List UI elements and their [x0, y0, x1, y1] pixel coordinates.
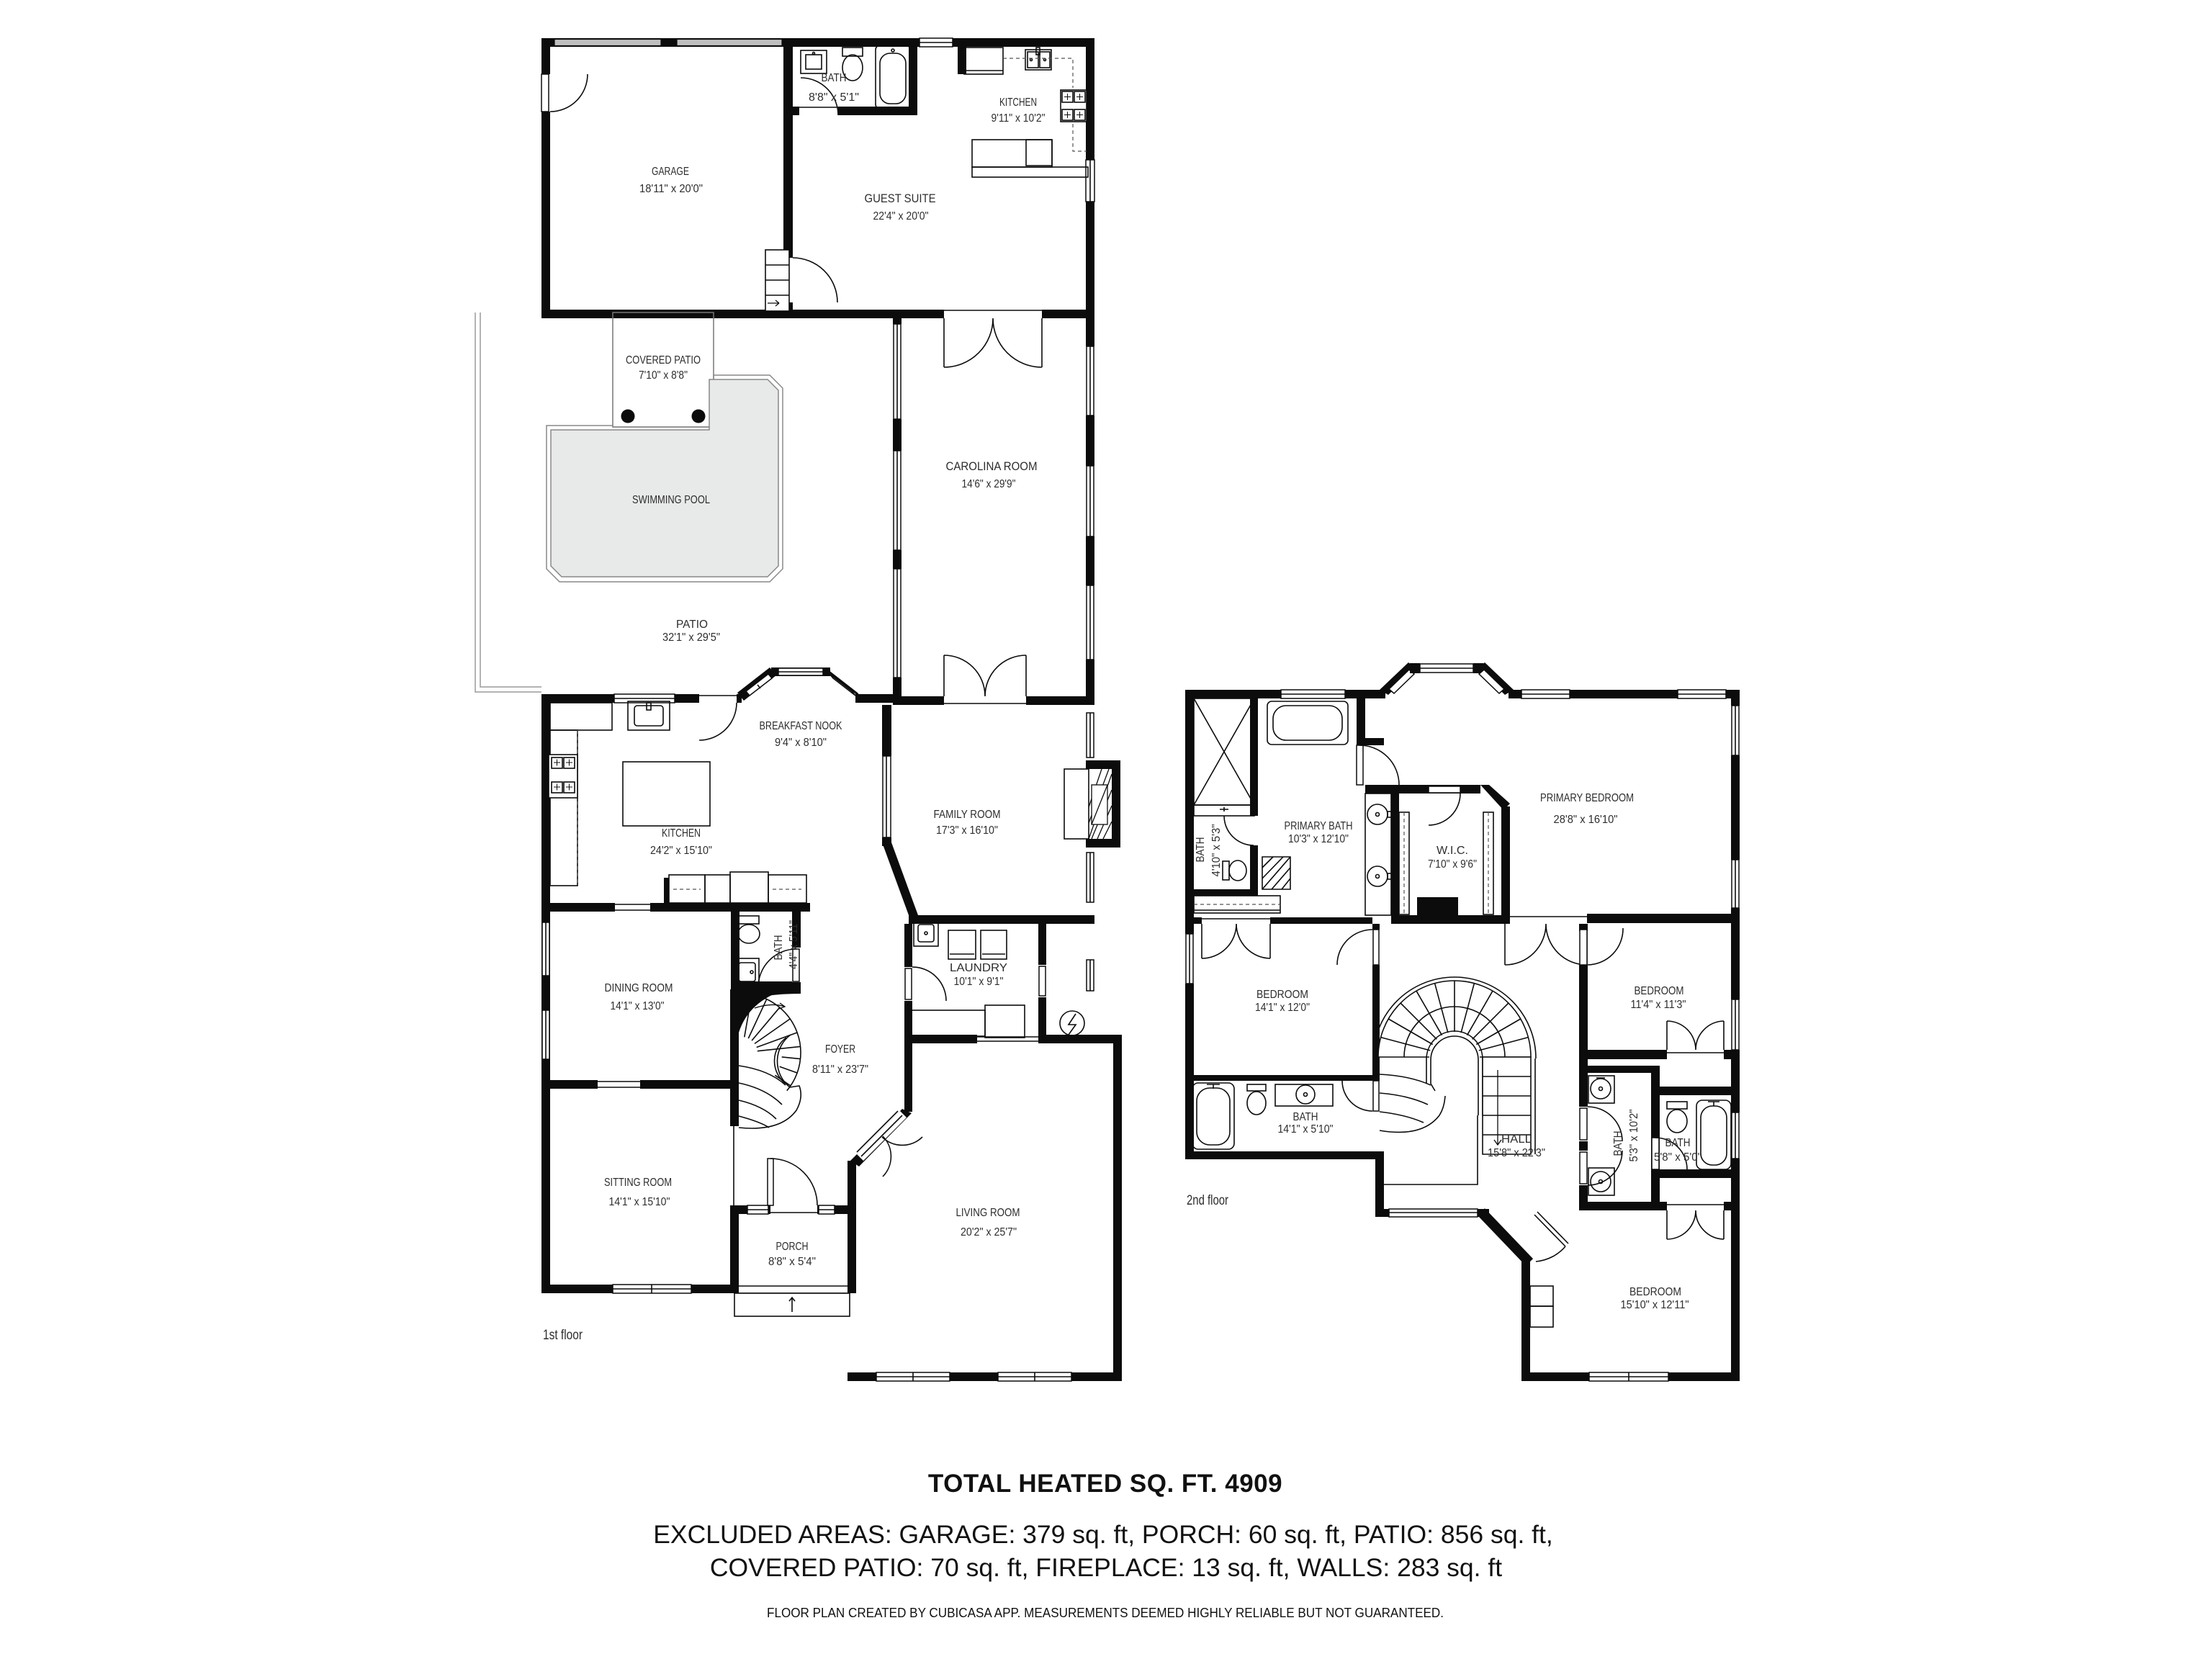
svg-text:BEDROOM: BEDROOM	[1629, 1286, 1681, 1298]
svg-text:BEDROOM: BEDROOM	[1256, 989, 1308, 1001]
svg-text:22'4" x 20'0": 22'4" x 20'0"	[873, 210, 929, 222]
svg-text:BATH: BATH	[1293, 1111, 1318, 1123]
svg-text:COVERED PATIO: 70 sq. ft, FIRE: COVERED PATIO: 70 sq. ft, FIREPLACE: 13 …	[710, 1553, 1502, 1582]
svg-text:BATH: BATH	[1665, 1137, 1691, 1149]
svg-text:7'10" x 8'8": 7'10" x 8'8"	[639, 369, 688, 382]
svg-text:W.I.C.: W.I.C.	[1437, 845, 1468, 857]
svg-text:GARAGE: GARAGE	[652, 166, 689, 178]
svg-text:LIVING ROOM: LIVING ROOM	[956, 1207, 1020, 1219]
svg-text:SWIMMING POOL: SWIMMING POOL	[632, 494, 710, 506]
svg-text:32'1" x 29'5": 32'1" x 29'5"	[662, 631, 720, 644]
svg-text:9'4" x 8'10": 9'4" x 8'10"	[775, 737, 827, 749]
svg-text:BATH: BATH	[773, 935, 785, 961]
svg-text:PRIMARY BEDROOM: PRIMARY BEDROOM	[1540, 792, 1634, 804]
svg-text:FOYER: FOYER	[825, 1043, 855, 1056]
svg-text:17'3" x 16'10": 17'3" x 16'10"	[936, 824, 998, 837]
svg-text:KITCHEN: KITCHEN	[662, 827, 701, 840]
svg-text:18'11" x 20'0": 18'11" x 20'0"	[639, 183, 703, 195]
svg-text:10'1" x 9'1": 10'1" x 9'1"	[954, 976, 1004, 988]
svg-text:BATH: BATH	[1195, 837, 1207, 863]
svg-text:24'2" x 15'10": 24'2" x 15'10"	[650, 845, 712, 857]
svg-text:4'10" x 5'3": 4'10" x 5'3"	[1210, 824, 1223, 877]
svg-text:8'8" x 5'4": 8'8" x 5'4"	[768, 1256, 816, 1268]
svg-text:9'11" x 10'2": 9'11" x 10'2"	[992, 112, 1046, 125]
svg-text:15'8" x 22'3": 15'8" x 22'3"	[1488, 1147, 1545, 1159]
svg-text:SITTING ROOM: SITTING ROOM	[604, 1177, 672, 1189]
svg-text:FAMILY ROOM: FAMILY ROOM	[934, 809, 1001, 821]
svg-text:KITCHEN: KITCHEN	[999, 96, 1037, 109]
svg-text:5'8" x 5'0": 5'8" x 5'0"	[1654, 1151, 1701, 1164]
svg-text:COVERED PATIO: COVERED PATIO	[626, 354, 701, 367]
svg-text:10'3" x 12'10": 10'3" x 12'10"	[1288, 833, 1349, 845]
svg-text:LAUNDRY: LAUNDRY	[950, 962, 1007, 974]
svg-text:28'8" x 16'10": 28'8" x 16'10"	[1554, 814, 1618, 826]
svg-text:BREAKFAST NOOK: BREAKFAST NOOK	[760, 720, 842, 732]
svg-text:CAROLINA ROOM: CAROLINA ROOM	[946, 459, 1038, 473]
svg-text:PORCH: PORCH	[776, 1241, 809, 1253]
svg-text:PRIMARY BATH: PRIMARY BATH	[1285, 820, 1353, 832]
svg-text:14'1" x 5'10": 14'1" x 5'10"	[1278, 1123, 1334, 1136]
svg-text:5'3" x 10'2": 5'3" x 10'2"	[1628, 1110, 1640, 1162]
svg-text:BEDROOM: BEDROOM	[1635, 985, 1684, 997]
svg-text:BATH: BATH	[1612, 1131, 1624, 1156]
svg-text:14'1" x 15'10": 14'1" x 15'10"	[609, 1196, 670, 1208]
svg-text:8'8" x 5'1": 8'8" x 5'1"	[809, 91, 859, 104]
svg-text:7'10" x 9'6": 7'10" x 9'6"	[1428, 858, 1477, 871]
svg-text:FLOOR PLAN CREATED BY CUBICASA: FLOOR PLAN CREATED BY CUBICASA APP. MEAS…	[767, 1606, 1444, 1620]
svg-text:20'2" x 25'7": 20'2" x 25'7"	[961, 1226, 1017, 1238]
svg-text:2nd floor: 2nd floor	[1187, 1193, 1229, 1208]
svg-text:1st floor: 1st floor	[543, 1328, 583, 1343]
svg-text:GUEST SUITE: GUEST SUITE	[865, 192, 936, 205]
svg-text:8'11" x 23'7": 8'11" x 23'7"	[812, 1064, 868, 1076]
svg-text:15'10" x 12'11": 15'10" x 12'11"	[1621, 1299, 1689, 1311]
svg-text:14'1" x 13'0": 14'1" x 13'0"	[611, 1000, 665, 1012]
svg-text:HALL: HALL	[1501, 1133, 1532, 1146]
svg-text:11'4" x 11'3": 11'4" x 11'3"	[1631, 999, 1686, 1011]
svg-text:EXCLUDED AREAS: GARAGE: 379 sq: EXCLUDED AREAS: GARAGE: 379 sq. ft, PORC…	[653, 1520, 1553, 1549]
svg-text:4'4" x 5'11": 4'4" x 5'11"	[788, 920, 800, 969]
svg-text:14'1" x 12'0": 14'1" x 12'0"	[1255, 1002, 1310, 1014]
svg-text:14'6" x 29'9": 14'6" x 29'9"	[962, 478, 1016, 490]
svg-text:DINING ROOM: DINING ROOM	[605, 982, 673, 994]
svg-text:TOTAL HEATED SQ. FT. 4909: TOTAL HEATED SQ. FT. 4909	[928, 1470, 1282, 1498]
svg-text:PATIO: PATIO	[676, 619, 708, 631]
svg-text:BATH: BATH	[822, 72, 847, 84]
